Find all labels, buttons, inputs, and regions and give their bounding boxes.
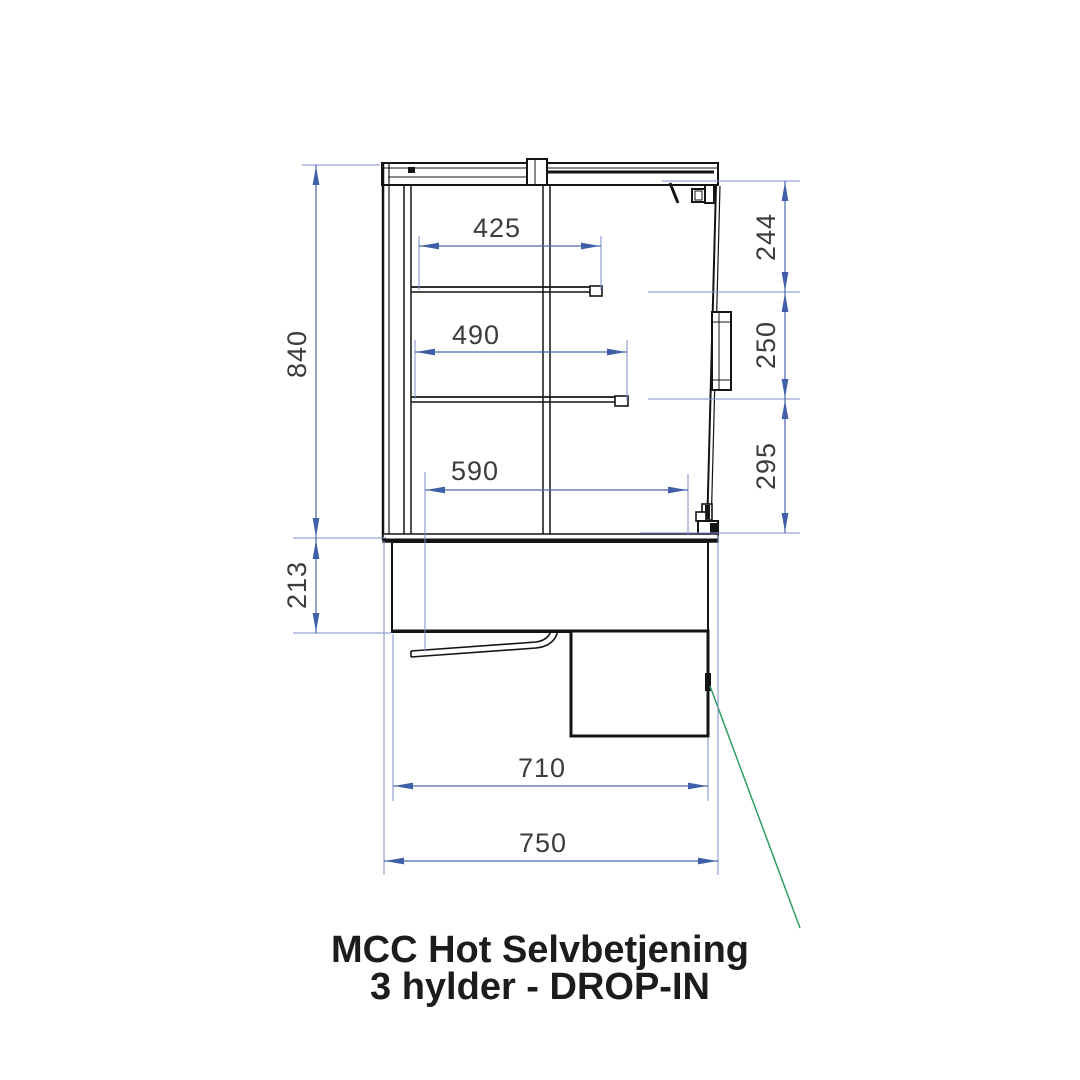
arrow-down-icon <box>313 613 320 632</box>
hinge-bracket-inner <box>695 191 702 200</box>
dimension-label-710: 710 <box>518 753 566 783</box>
dimension-label-213: 213 <box>282 561 312 609</box>
dimension-label-244: 244 <box>751 213 781 261</box>
dimension-label-840: 840 <box>282 330 312 378</box>
arrow-up-icon <box>782 182 789 201</box>
arrow-left-icon <box>385 858 404 865</box>
dimension-label-295: 295 <box>751 442 781 490</box>
bottom-right-hinge <box>696 504 718 535</box>
dimension-middle-shelf-depth: 490 <box>415 320 627 401</box>
arrow-left-icon <box>420 243 439 250</box>
arrow-right-icon <box>698 858 717 865</box>
handle-body <box>712 312 731 390</box>
hinge-lower-base-fill <box>710 523 717 534</box>
product-title-line1: MCC Hot Selvbetjening <box>331 929 749 971</box>
dimension-label-750: 750 <box>519 828 567 858</box>
arrow-left-icon <box>394 783 413 790</box>
door-handle <box>712 312 731 390</box>
hinge-lower-block-b <box>696 512 706 521</box>
arrow-up-icon <box>313 540 320 559</box>
compressor-box <box>571 631 708 736</box>
dimension-label-250: 250 <box>751 321 781 369</box>
technical-drawing: 840 213 244 250 295 425 <box>0 0 1080 1080</box>
arrow-down-icon <box>782 379 789 398</box>
base-body <box>392 542 708 632</box>
product-title: MCC Hot Selvbetjening 3 hylder - DROP-IN <box>331 929 749 1008</box>
drip-tray <box>411 630 558 657</box>
arrow-right-icon <box>668 487 687 494</box>
arrow-down-icon <box>782 272 789 291</box>
hinge-block <box>705 185 714 203</box>
dimension-label-490: 490 <box>452 320 500 350</box>
arrow-down-icon <box>313 518 320 537</box>
arrow-up-icon <box>782 400 789 419</box>
arrow-left-icon <box>416 349 435 356</box>
top-frame-fastener-dot <box>408 167 415 173</box>
shelf-middle <box>411 396 628 406</box>
shelf-top <box>411 286 602 296</box>
arrow-up-icon <box>782 293 789 312</box>
arrow-right-icon <box>581 243 600 250</box>
arrow-right-icon <box>607 349 626 356</box>
top-center-block <box>527 159 547 185</box>
top-frame <box>382 163 718 185</box>
arrow-right-icon <box>688 783 707 790</box>
drip-tray-bottom-line <box>411 630 558 657</box>
dimension-overall-height: 840 <box>282 165 386 538</box>
arrow-left-icon <box>426 487 445 494</box>
dimension-label-590: 590 <box>451 456 499 486</box>
product-title-line2: 3 hylder - DROP-IN <box>370 966 710 1008</box>
shelf-middle-end-cap <box>615 396 628 406</box>
dimension-top-shelf-depth: 425 <box>419 213 601 290</box>
cabinet-base-section <box>392 542 711 736</box>
arrow-down-icon <box>782 513 789 532</box>
arrow-up-icon <box>313 166 320 185</box>
shelf-top-end-cap <box>590 286 602 296</box>
leader-line <box>710 686 800 928</box>
dimension-base-height: 213 <box>282 538 391 633</box>
dimension-label-425: 425 <box>473 213 521 243</box>
